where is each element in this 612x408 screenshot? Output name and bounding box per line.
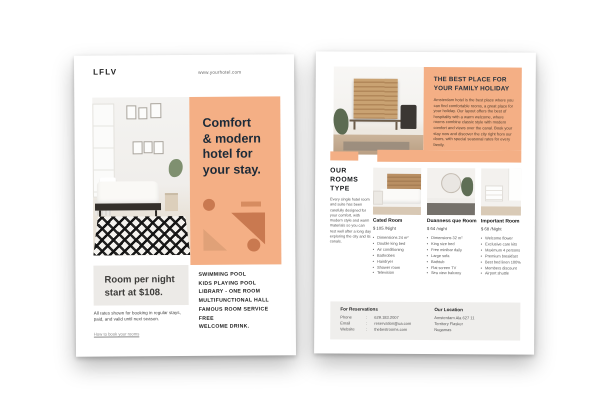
bar-shape [241,201,261,206]
price-text: Room per night start at $108. [104,273,174,299]
feature-text: Airport shuttle [485,271,509,277]
headline-line: hotel for [203,146,261,162]
picture-frame [154,141,164,154]
room-name: Duanness que Room [427,218,479,224]
room-price: $ 105 /Night [373,226,423,231]
bullet-icon: • [481,271,482,277]
plant [333,108,348,134]
headline-block: Comfort& modernhotel foryour stay. [189,96,281,265]
amenities-list: SWIMMING POOLKIDS PLAYING POOLLIBRARY - … [198,270,269,331]
room-column-1: Cated Room $ 105 /Night •Dimensions 24 m… [373,218,423,277]
orange-chip [330,151,358,160]
reservations-block: For Reservations Phone:629.183.2007Email… [340,306,411,333]
hero-title-line: THE BEST PLACE FOR [434,76,510,85]
lobby-photo [333,66,424,155]
amenity-item: MULTIFUNCTIONAL HALL [199,297,269,306]
location-line: Amsterdam Ala 627 11 [434,315,474,321]
headline-line: Comfort [202,115,260,131]
headline-line: your stay. [203,162,261,178]
hero-block: THE BEST PLACE FORYOUR FAMILY HOLIDAY Am… [423,67,522,151]
room-photo-3 [481,168,521,215]
feature-item: •Television [373,270,423,276]
picture-frame [144,141,153,153]
reservations-rows: Phone:629.183.2007Email:reservation@ua.c… [340,314,411,333]
location-title: Our Location [434,307,474,312]
side-table [165,193,178,211]
rooms-heading-line: ROOMS [330,176,358,185]
hero-title: THE BEST PLACE FORYOUR FAMILY HOLIDAY [434,76,510,94]
room-price: $ 68 /Night [481,226,529,231]
reservation-row: Website:thebestrooms.com [340,326,411,333]
bed [379,189,421,204]
room-photo-1 [373,168,421,215]
flyer-page-left: LFLV www.yourhotel.com Comfort& modernho… [74,54,296,357]
floor [481,206,521,215]
bed-frame [95,203,161,210]
dresser [485,185,503,201]
bedroom-photo [92,97,190,256]
circle-shape [247,238,260,251]
hero-title-line: YOUR FAMILY HOLIDAY [434,85,510,94]
location-line: Nugamas [434,327,474,333]
picture-frame [150,103,161,118]
picture-frame [126,105,136,119]
room-features: •Dimensions 24 m²•Double king bed•Air co… [373,235,423,277]
reservations-title: For Reservations [340,306,411,311]
table-leg [353,122,355,130]
footnote-link[interactable]: How to book your rooms [94,331,139,336]
feature-text: Television [377,270,394,276]
mockup-stage: LFLV www.yourhotel.com Comfort& modernho… [0,0,612,408]
rooms-heading-line: TYPE [330,185,358,194]
room-features: •Welcome flower•Exclusive care kits•Maxi… [481,235,529,277]
room-features: •Dimensions 32 m²•King size bed•Free min… [427,235,479,277]
amenity-item: WELCOME DRINK. [199,323,269,332]
triangle-shape-small [203,229,227,251]
patterned-rug [93,216,190,256]
wood-panel [354,79,398,119]
picture-frame [138,107,147,119]
website-url[interactable]: www.yourhotel.com [198,70,241,75]
flyer-page-right: THE BEST PLACE FORYOUR FAMILY HOLIDAY Am… [314,51,536,354]
colon: : [366,327,374,333]
chair [400,105,416,129]
bed-leg [155,210,157,216]
window [508,169,521,201]
price-line: start at $108. [105,286,175,299]
feature-item: •Airport shuttle [481,271,529,277]
footnote-text: All rates shown for booking in regular s… [94,310,190,323]
rooms-heading-line: OUR [330,167,358,176]
price-line: Room per night [104,273,174,286]
bed-leg [99,211,101,217]
location-lines: Amsterdam Ala 627 11Territory FlaskerNug… [434,315,474,334]
round-mirror [441,173,461,193]
geometric-shapes [203,192,269,256]
rooms-heading: OURROOMSTYPE [330,167,358,194]
feature-item: •Sea view balcony [427,270,479,276]
table-leg [395,122,397,130]
orange-strip [377,150,521,163]
circle-shape [203,199,215,211]
hero-body: Amsterdam hotel is the best place where … [433,97,513,148]
bullet-icon: • [373,270,374,276]
room-column-2: Duanness que Room $ 64 /night •Dimension… [427,218,479,277]
bullet-icon: • [427,270,428,276]
room-name: Cated Room [373,218,423,224]
feature-text: Sea view balcony [431,270,461,276]
room-price: $ 64 /night [427,226,479,231]
plant [169,159,183,177]
room-photo-2 [427,168,475,215]
headline: Comfort& modernhotel foryour stay. [202,115,261,177]
location-block: Our Location Amsterdam Ala 627 11Territo… [434,307,474,333]
headline-line: & modern [202,131,260,147]
nightstand [373,191,383,205]
brand-logo: LFLV [93,67,117,76]
bed [427,203,475,215]
reservation-label: Website [340,326,366,332]
picture-frame [133,141,143,154]
console-table [349,120,401,122]
room-name: Important Room [481,218,529,224]
amenity-item: FAMOUS ROOM SERVICE [199,305,269,314]
room-column-3: Important Room $ 68 /Night •Welcome flow… [481,218,529,277]
plant [461,177,473,196]
footer-bar: For Reservations Phone:629.183.2007Email… [330,301,520,340]
floor [373,207,421,215]
headboard [387,174,421,190]
reservation-value[interactable]: thebestrooms.com [374,327,407,333]
price-box: Room per night start at $108. [93,265,188,306]
rooms-intro: Every single hotel room and suite has be… [330,197,372,245]
